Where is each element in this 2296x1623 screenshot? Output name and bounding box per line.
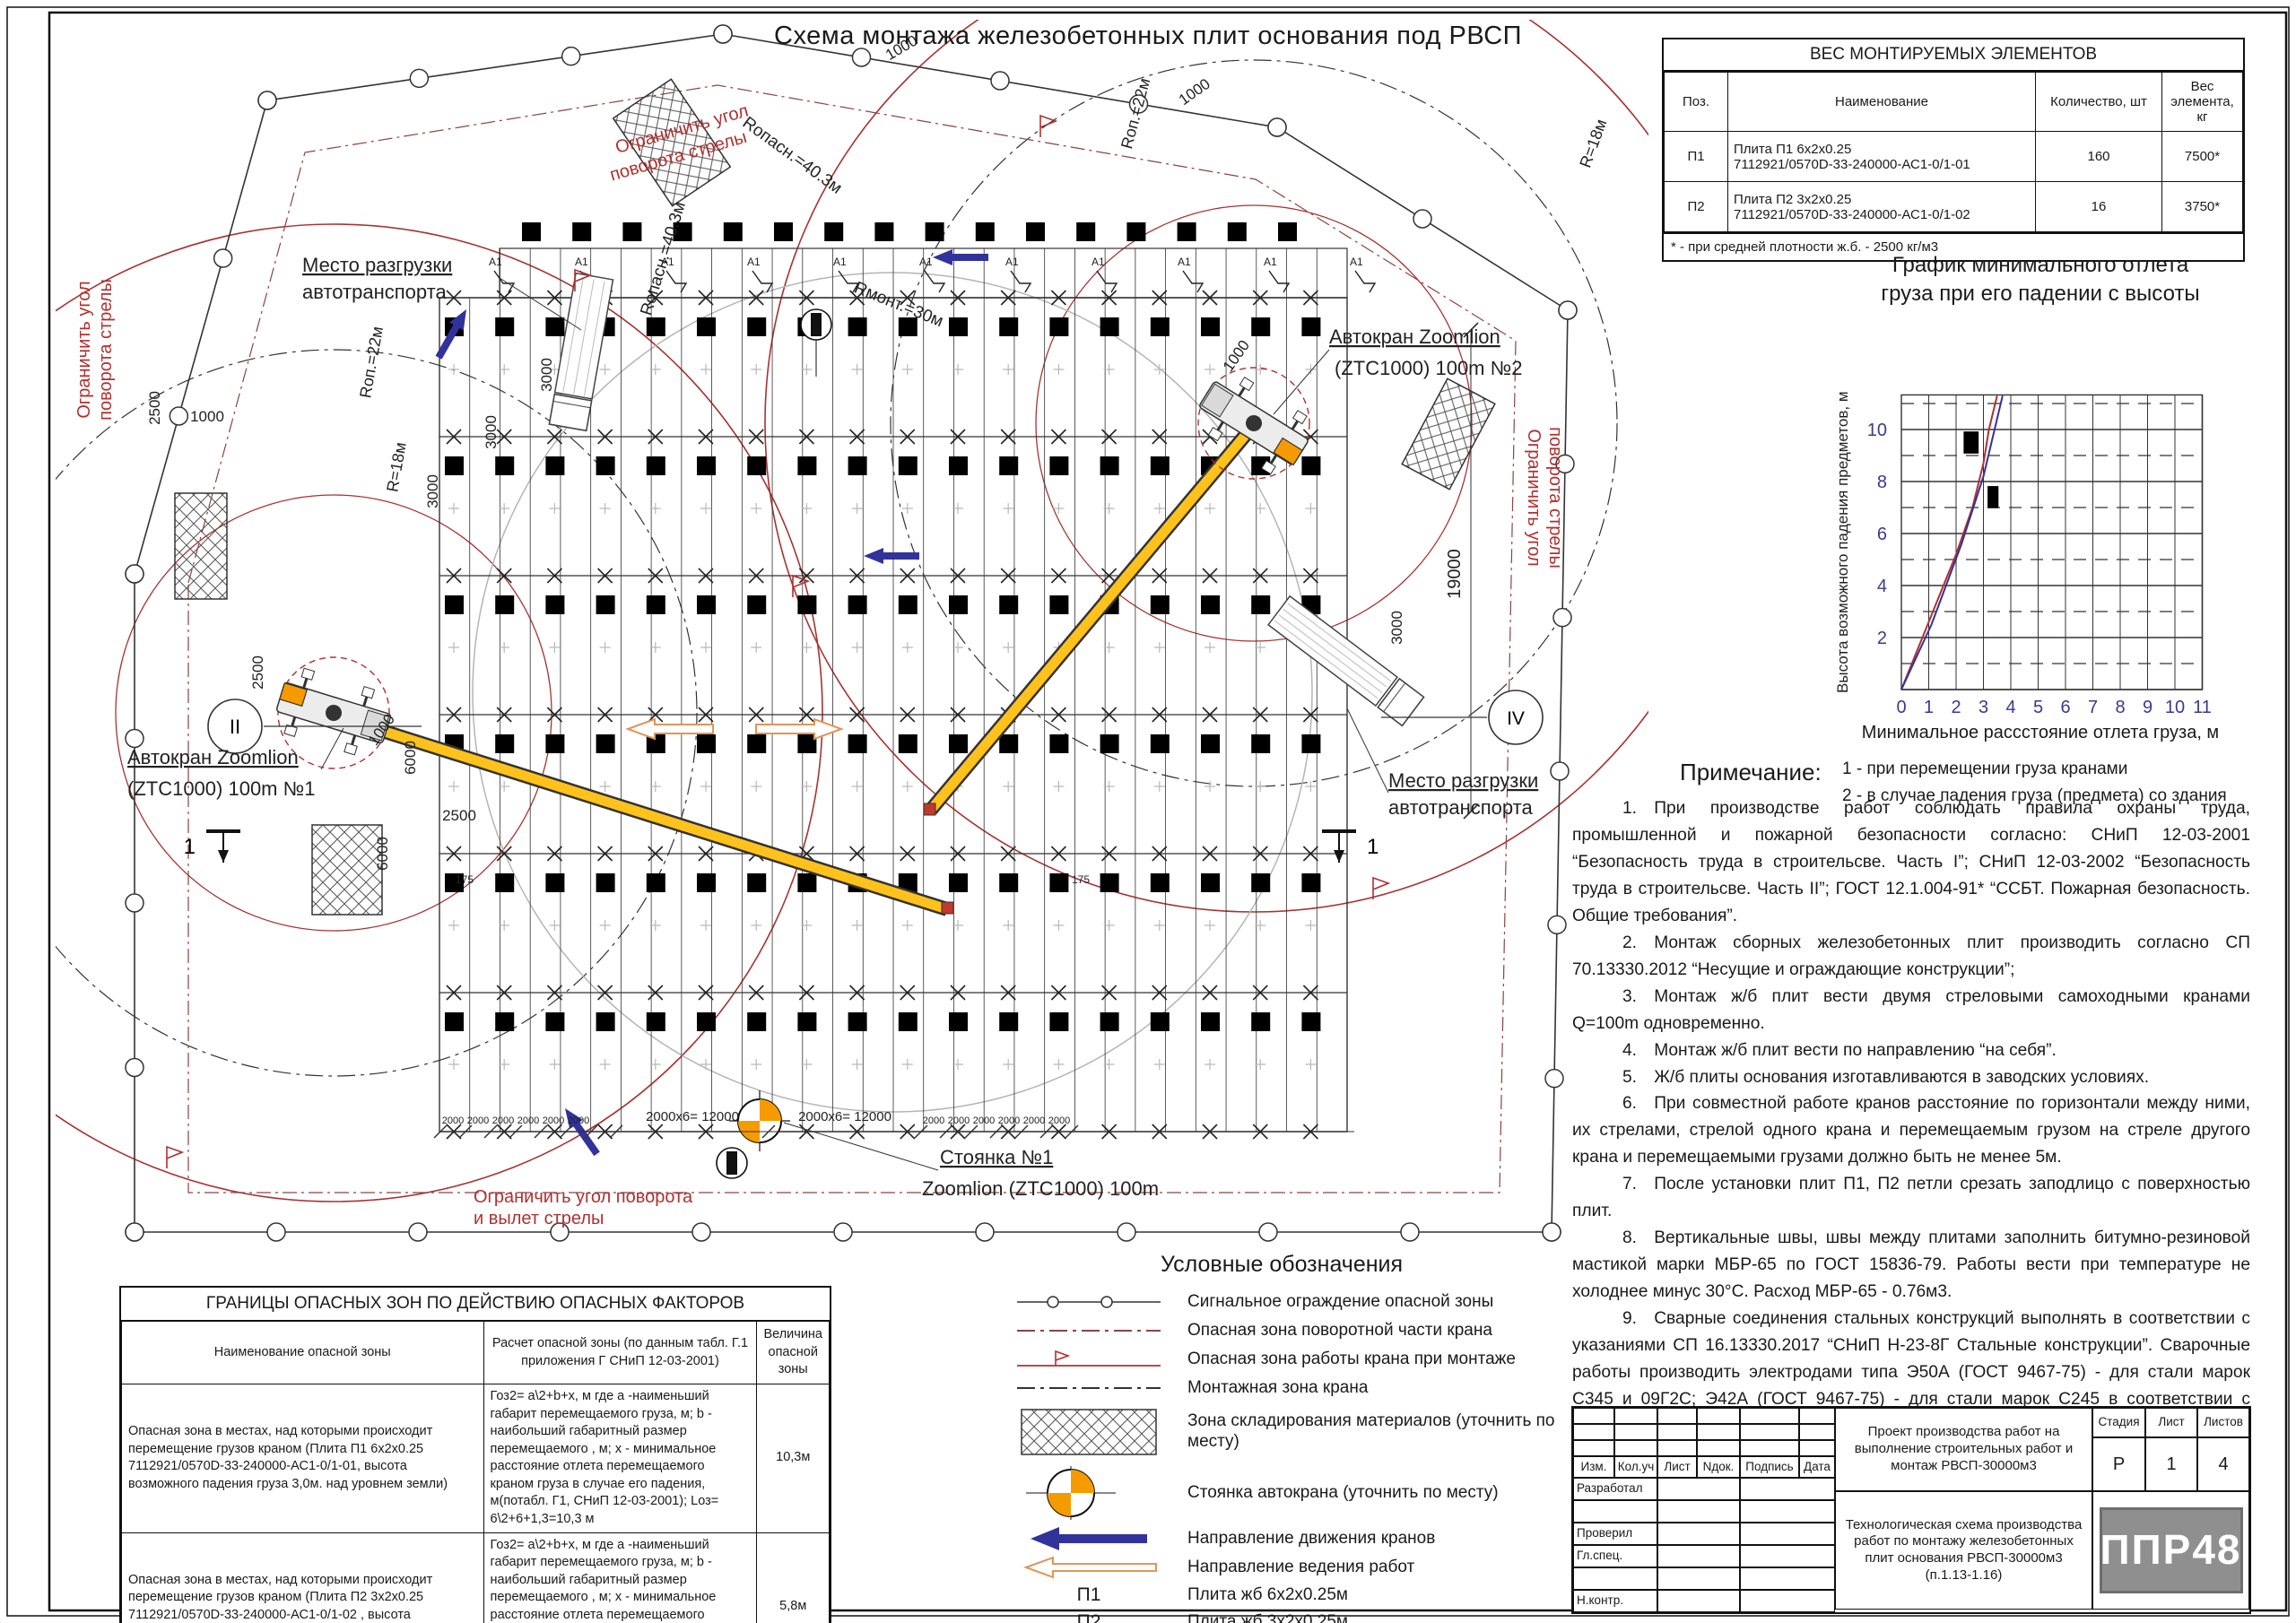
anchor-zigzag [1269, 271, 1289, 292]
x-tick: 11 [2193, 698, 2212, 717]
title-block-revision-area: Изм.Кол.учЛистNдок.ПодписьДатаРазработал… [1573, 1408, 1835, 1612]
weight-cell: 3750* [2162, 182, 2243, 232]
plate-mark [747, 456, 766, 475]
anchor-label: А1 [575, 256, 588, 268]
plate-mark [1049, 1012, 1068, 1031]
plate-mark [1026, 222, 1045, 241]
legend-item-label: Стоянка автокрана (уточнить по месту) [1187, 1483, 1499, 1504]
anchor-label: А1 [1178, 256, 1191, 268]
plate-mark [1151, 873, 1170, 892]
role-cell [1573, 1567, 1657, 1590]
dim-2000: 2000 [1048, 1115, 1070, 1126]
leader-line [1274, 350, 1329, 414]
legend-item-label: Монтажная зона крана [1187, 1378, 1368, 1399]
blue-arrow-icon [990, 1527, 1187, 1550]
pos-cell: П2 [1665, 182, 1728, 232]
crane-move-arrow [431, 306, 474, 362]
plate-mark [545, 317, 564, 336]
dim-label: 1000 [1220, 337, 1253, 375]
rev-header: Лист [1657, 1456, 1697, 1478]
dim-label: 2500 [442, 807, 476, 824]
rev-cell [1573, 1408, 1614, 1424]
dim-2000: 2000 [543, 1115, 564, 1126]
dim-2000: 2000 [948, 1115, 970, 1126]
fence-post [562, 48, 580, 65]
plate-mark [949, 734, 968, 753]
legend-item: Стоянка автокрана (уточнить по месту) [990, 1464, 1573, 1522]
plate-mark [899, 734, 918, 753]
dim-2000: 2000 [923, 1115, 944, 1126]
dim-12000: 2000х6= 12000 [646, 1109, 739, 1124]
zone-calc: Гоз2= а\2+b+х, м где а -наименьший габар… [483, 1384, 757, 1533]
circle-shape [1048, 1297, 1058, 1307]
radius-label: R=18м [1576, 117, 1610, 169]
leader-line [321, 728, 344, 769]
plate-mark [1100, 317, 1119, 336]
plate-mark [545, 595, 564, 614]
chart-title-line1: График минимального отлета [1892, 253, 2188, 277]
dim-label: 3000 [483, 415, 500, 449]
plan-labels: Место разгрузкиавтотранспортаМесто разгр… [74, 32, 1610, 1228]
П1-icon: П1 [990, 1584, 1187, 1606]
plate-mark [999, 734, 1018, 753]
circle-shape [1101, 1297, 1112, 1307]
plate-mark [1251, 873, 1270, 892]
zone-value: 10,3м [757, 1384, 830, 1533]
path-shape [1048, 1493, 1071, 1516]
col-name: Наименование [1728, 73, 2036, 132]
plate-mark [1201, 595, 1220, 614]
chart-title-line2: груза при его падении с высоты [1881, 282, 2199, 306]
role-cell [1573, 1500, 1657, 1523]
anchor-zigzag [1183, 271, 1203, 292]
plate-mark [1301, 1012, 1320, 1031]
radius-label: Rоп.=22м [1118, 76, 1153, 151]
legend-item: Направление ведения работ [990, 1556, 1573, 1579]
crane2-label: Автокран Zoomlion [1329, 325, 1500, 348]
plate-mark [999, 456, 1018, 475]
unload-label: автотранспорта [1388, 796, 1533, 819]
plate-mark [999, 1012, 1018, 1031]
fence-post [126, 1059, 143, 1077]
fence-post [991, 72, 1009, 90]
plate-mark [1201, 317, 1220, 336]
plate-mark [1201, 873, 1220, 892]
plate-mark [1151, 595, 1170, 614]
fence-post [1259, 1223, 1277, 1241]
role-cell: Н.контр. [1573, 1590, 1657, 1612]
date-cell [1740, 1590, 1835, 1612]
rev-cell [1614, 1408, 1657, 1424]
plate-mark [848, 595, 867, 614]
legend-item-label: Опасная зона поворотной части крана [1187, 1321, 1492, 1341]
fence-post [692, 1223, 710, 1241]
anchor-cross-marks [448, 364, 1316, 1070]
fence-post [1548, 916, 1566, 933]
x-tick: 10 [2165, 698, 2185, 717]
x-tick: 4 [2005, 698, 2015, 717]
crane1-label: (ZTC1000) 100m №1 [127, 777, 315, 800]
role-cell: Разработал [1573, 1478, 1657, 1500]
sheet-header: Лист [2145, 1408, 2197, 1437]
note-item-5: 5. Ж/б плиты основания изготавливаются в… [1572, 1064, 2250, 1091]
plate-mark [1251, 317, 1270, 336]
limit-label: поворота стрелы [1545, 427, 1565, 568]
dim-2000: 2000 [998, 1115, 1020, 1126]
plate-code: 7112921/0570D-33-240000-АС1-0/1-02 [1734, 207, 2030, 222]
fence-post [1559, 301, 1577, 319]
legend-rows: Сигнальное ограждение опасной зоныОпасна… [990, 1290, 1573, 1623]
rev-cell [1573, 1440, 1614, 1456]
note-item-2: 2. Монтаж сборных железобетонных плит пр… [1572, 930, 2250, 984]
dim-2000: 2000 [1023, 1115, 1045, 1126]
sign-cell [1657, 1523, 1740, 1545]
rev-header: Дата [1799, 1456, 1835, 1478]
x-tick: 3 [1979, 698, 1988, 717]
notes-body: 1. При производстве работ соблюдать прав… [1572, 795, 2250, 1494]
col-zone-name: Наименование опасной зоны [122, 1322, 484, 1384]
plate-mark [1151, 1012, 1170, 1031]
plate-mark [874, 222, 893, 241]
zone-value: 5,8м [757, 1532, 830, 1623]
rev-header: Подпись [1740, 1456, 1799, 1478]
plate-mark [647, 317, 665, 336]
rev-cell [1697, 1408, 1740, 1424]
x-tick: 5 [2033, 698, 2043, 717]
crane-boom [345, 425, 1254, 914]
plate-mark [999, 317, 1018, 336]
sheets-header: Листов [2197, 1408, 2249, 1437]
limit-label: Ограничить угол [1524, 429, 1544, 566]
plate-mark [797, 1012, 816, 1031]
legend-item-label: Сигнальное ограждение опасной зоны [1187, 1292, 1493, 1313]
plate-mark [747, 734, 766, 753]
sign-cell [1657, 1590, 1740, 1612]
dim-label: 1000 [1176, 75, 1213, 108]
rev-cell [1740, 1424, 1799, 1440]
fence-post [1551, 762, 1569, 780]
anchor-zigzag [666, 271, 686, 292]
leader-line [784, 1123, 938, 1170]
sheet-value: 1 [2145, 1437, 2197, 1491]
date-cell [1740, 1500, 1835, 1523]
svg-text:IV: IV [1507, 708, 1525, 729]
radius-label: Rоп.=22м [356, 325, 387, 399]
boom-tip [924, 803, 935, 815]
legend-item-label: Зона складирования материалов (уточнить … [1187, 1411, 1573, 1453]
plate-mark [848, 317, 867, 336]
x-tick: 9 [2143, 698, 2152, 717]
legend-item: Опасная зона работы крана при монтаже [990, 1348, 1573, 1371]
dim-2000: 2000 [442, 1115, 464, 1126]
fence-post [409, 1223, 427, 1241]
rev-cell [1657, 1440, 1697, 1456]
sign-cell [1657, 1500, 1740, 1523]
danger-table-title: ГРАНИЦЫ ОПАСНЫХ ЗОН ПО ДЕЙСТВИЮ ОПАСНЫХ … [121, 1288, 830, 1321]
fence-posts [126, 25, 1577, 1241]
rev-cell [1799, 1408, 1835, 1424]
plate-code: 7112921/0570D-33-240000-АС1-0/1-01 [1734, 157, 2030, 172]
plate-mark [647, 456, 665, 475]
anchor-label: А1 [919, 256, 933, 268]
date-cell [1740, 1523, 1835, 1545]
dim-2000: 2000 [492, 1115, 514, 1126]
plate-mark [1151, 317, 1170, 336]
fence-post [126, 565, 143, 583]
plate-mark [545, 734, 564, 753]
anchor-label: А1 [1264, 256, 1277, 268]
legend-item: П2Плита жб 3х2х0.25м [990, 1611, 1573, 1623]
plate-mark [899, 595, 918, 614]
plate-mark [949, 317, 968, 336]
role-cell: Проверил [1573, 1523, 1657, 1545]
rev-cell [1697, 1424, 1740, 1440]
dim-label: 2500 [249, 655, 266, 690]
fence-post [267, 1223, 285, 1241]
plate-mark [1201, 734, 1220, 753]
drawing-sheet: А1А1А1А1А1А1А1А1А1А1А1 [0, 0, 2296, 1623]
plate-mark [899, 456, 918, 475]
legend-symbol-text: П2 [1077, 1611, 1101, 1623]
dim-label: 175 [456, 873, 474, 886]
fence-post [1553, 609, 1571, 627]
anchor-label: А1 [489, 256, 502, 268]
date-cell [1740, 1567, 1835, 1590]
x-tick: 0 [1896, 698, 1906, 717]
plate-mark [848, 1012, 867, 1031]
plate-mark [697, 734, 716, 753]
name-cell: Плита П2 3х2х0.257112921/0570D-33-240000… [1728, 182, 2036, 232]
legend-item: Опасная зона поворотной части крана [990, 1319, 1573, 1342]
note-item-6: 6. При совместной работе кранов расстоян… [1572, 1090, 2250, 1171]
plate-mark [596, 456, 615, 475]
notes-title: Примечание: [1680, 759, 2250, 786]
plate-mark [1178, 222, 1196, 241]
legend-item-label: Направление ведения работ [1187, 1558, 1414, 1578]
crane-move-arrow [933, 249, 988, 265]
fence-post [834, 1223, 852, 1241]
zone-flag [1040, 116, 1056, 137]
boom-tip [942, 902, 953, 914]
legend-title: Условные обозначения [990, 1252, 1573, 1278]
plate-mark [999, 873, 1018, 892]
company-logo: ППР48 [2100, 1507, 2243, 1593]
plate-mark [1049, 873, 1068, 892]
plate-mark [445, 595, 464, 614]
plate-mark [697, 1012, 716, 1031]
path-shape [1071, 1470, 1094, 1493]
svg-text:1: 1 [1367, 835, 1378, 859]
plate-mark [495, 456, 514, 475]
dim-12000: 2000х6= 12000 [798, 1109, 891, 1124]
crane-move-arrow [864, 548, 919, 564]
plate-mark [1076, 222, 1095, 241]
rev-header: Nдок. [1697, 1456, 1740, 1478]
plate-mark [797, 595, 816, 614]
limit-label: и вылет стрелы [474, 1209, 604, 1228]
table-row: Опасная зона в местах, над которыми прои… [122, 1532, 830, 1623]
plate-mark [596, 595, 615, 614]
note-item-3: 3. Монтаж ж/б плит вести двумя стреловым… [1572, 984, 2250, 1037]
limit-label: Ограничить угол [74, 281, 94, 418]
table-row: П1 Плита П1 6х2х0.257112921/0570D-33-240… [1665, 132, 2243, 182]
plate-mark [445, 456, 464, 475]
stage-value: Р [2092, 1437, 2145, 1491]
plate-name: Плита П2 3х2х0.25 [1734, 192, 2030, 207]
rev-cell [1740, 1440, 1799, 1456]
pos-cell: П1 [1665, 132, 1728, 182]
dim-label: 1000 [190, 408, 224, 425]
legend-item: Направление движения кранов [990, 1527, 1573, 1550]
col-zone-calc: Расчет опасной зоны (по данным табл. Г.1… [483, 1322, 757, 1384]
plate-mark [1301, 456, 1320, 475]
plate-mark [647, 873, 665, 892]
qty-cell: 16 [2036, 182, 2162, 232]
rev-header: Кол.уч [1614, 1456, 1657, 1478]
dim-label: 6000 [374, 837, 391, 871]
plate-mark [949, 1012, 968, 1031]
plate-mark [1100, 456, 1119, 475]
zone-name: Опасная зона в местах, над которыми прои… [122, 1384, 484, 1533]
chart-ylabel: Высота возможного падения предметов, м [1834, 391, 1851, 692]
fence-post [258, 91, 276, 109]
plate-mark [596, 1012, 615, 1031]
plate-mark [697, 595, 716, 614]
legend-item: П1Плита жб 6х2х0.25м [990, 1584, 1573, 1606]
parking-label: Zoomlion (ZTC1000) 100m [922, 1177, 1159, 1200]
chart-marker [1963, 431, 1979, 454]
col-pos: Поз. [1665, 73, 1728, 132]
plate-mark [926, 222, 944, 241]
signal-fence-icon [990, 1290, 1187, 1314]
anchor-zigzag [1011, 271, 1031, 292]
weight-table: ВЕС МОНТИРУЕМЫХ ЭЛЕМЕНТОВ Поз. Наименова… [1662, 38, 2245, 262]
weight-cell: 7500* [2162, 132, 2243, 182]
col-zone-value: Величина опасной зоны [757, 1322, 830, 1384]
svg-text:II: II [230, 716, 240, 738]
fence-post [126, 894, 143, 912]
limit-label: поворота стрелы [96, 279, 116, 421]
plate-mark [495, 317, 514, 336]
stage-header: Стадия [2092, 1408, 2145, 1437]
legend-item: Сигнальное ограждение опасной зоны [990, 1290, 1573, 1314]
y-tick: 2 [1877, 629, 1887, 648]
plate-mark [1251, 1012, 1270, 1031]
weight-table-title: ВЕС МОНТИРУЕМЫХ ЭЛЕМЕНТОВ [1664, 39, 2243, 72]
crane-parking-icon [990, 1464, 1187, 1522]
y-tick: 4 [1877, 577, 1887, 596]
plate-mark [949, 595, 968, 614]
rev-cell [1614, 1424, 1657, 1440]
svg-text:1: 1 [184, 835, 196, 859]
plate-mark [747, 595, 766, 614]
legend-item: Монтажная зона крана [990, 1376, 1573, 1400]
danger-zone-arc [0, 224, 822, 1202]
fence-post [1268, 118, 1286, 136]
plate-mark [1126, 222, 1145, 241]
chart-marker [1987, 486, 1998, 508]
plate-mark [572, 222, 591, 241]
anchor-label: А1 [833, 256, 847, 268]
notes-block: Примечание: 1. При производстве работ со… [1572, 759, 2250, 1494]
orange-arrow-icon [990, 1556, 1187, 1579]
dim-2000: 2000 [568, 1115, 589, 1126]
rev-cell [1614, 1440, 1657, 1456]
note-item-7: 7. После установки плит П1, П2 петли сре… [1572, 1171, 2250, 1225]
legend-item: Зона складирования материалов (уточнить … [990, 1405, 1573, 1459]
plate-mark [1151, 456, 1170, 475]
plate-mark [949, 873, 968, 892]
unload-label: Место разгрузки [1388, 769, 1538, 792]
dim-2000: 2000 [467, 1115, 489, 1126]
legend-item-label: Направление движения кранов [1187, 1529, 1435, 1549]
plate-mark [1151, 734, 1170, 753]
plate-mark [1251, 595, 1270, 614]
sheet-title: Технологическая схема производства работ… [1835, 1491, 2092, 1610]
plate-mark [1049, 456, 1068, 475]
role-cell: Гл.спец. [1573, 1545, 1657, 1567]
plate-mark [1228, 222, 1247, 241]
rev-cell [1799, 1440, 1835, 1456]
page-title: Схема монтажа железобетонных плит основа… [709, 22, 1587, 51]
plate-mark [747, 873, 766, 892]
path-shape [1056, 1351, 1068, 1366]
x-tick: 7 [2088, 698, 2098, 717]
plate-mark [1251, 734, 1270, 753]
plate-mark [824, 222, 843, 241]
title-block-main: Проект производства работ на выполнение … [1835, 1408, 2249, 1612]
plate-mark [1301, 317, 1320, 336]
date-cell [1740, 1478, 1835, 1500]
plate-mark [697, 317, 716, 336]
plate-mark [1201, 1012, 1220, 1031]
project-name: Проект производства работ на выполнение … [1835, 1408, 2092, 1491]
dim-label: 2500 [146, 391, 163, 425]
unload-label: автотранспорта [302, 281, 447, 303]
note-item-1: 1. При производстве работ соблюдать прав… [1572, 795, 2250, 930]
series-line-1 [1901, 395, 1997, 690]
crane1-label: Автокран Zoomlion [127, 746, 299, 768]
y-tick: 6 [1877, 525, 1887, 544]
col-weight: Вес элемента, кг [2162, 73, 2243, 132]
plate-mark [848, 456, 867, 475]
signal-fence [135, 34, 1568, 1232]
sign-cell [1657, 1478, 1740, 1500]
plate-mark [596, 873, 615, 892]
plate-mark [445, 1012, 464, 1031]
fence-post [1545, 1070, 1563, 1088]
limit-label: Ограничить угол поворота [474, 1187, 693, 1207]
table-row: П2 Плита П2 3х2х0.257112921/0570D-33-240… [1665, 182, 2243, 232]
legend-item-label: Плита жб 3х2х0.25м [1187, 1612, 1348, 1623]
title-block: Изм.Кол.учЛистNдок.ПодписьДатаРазработал… [1571, 1406, 2251, 1614]
x-tick: 1 [1924, 698, 1934, 717]
plate-name: Плита П1 6х2х0.25 [1734, 142, 2030, 157]
fence-post [976, 1223, 994, 1241]
radius-label: R=18м [383, 441, 409, 494]
plate-mark [747, 317, 766, 336]
red-dashdot-icon [990, 1319, 1187, 1342]
fence-post [126, 1223, 143, 1241]
x-tick: 8 [2115, 698, 2125, 717]
plate-mark [1100, 734, 1119, 753]
dim-label: 175 [1072, 873, 1090, 886]
fence-post [126, 730, 143, 748]
plate-mark [747, 1012, 766, 1031]
zone-flag [167, 1147, 182, 1168]
plate-mark [724, 222, 743, 241]
dim-label: 19000 [1445, 549, 1465, 599]
